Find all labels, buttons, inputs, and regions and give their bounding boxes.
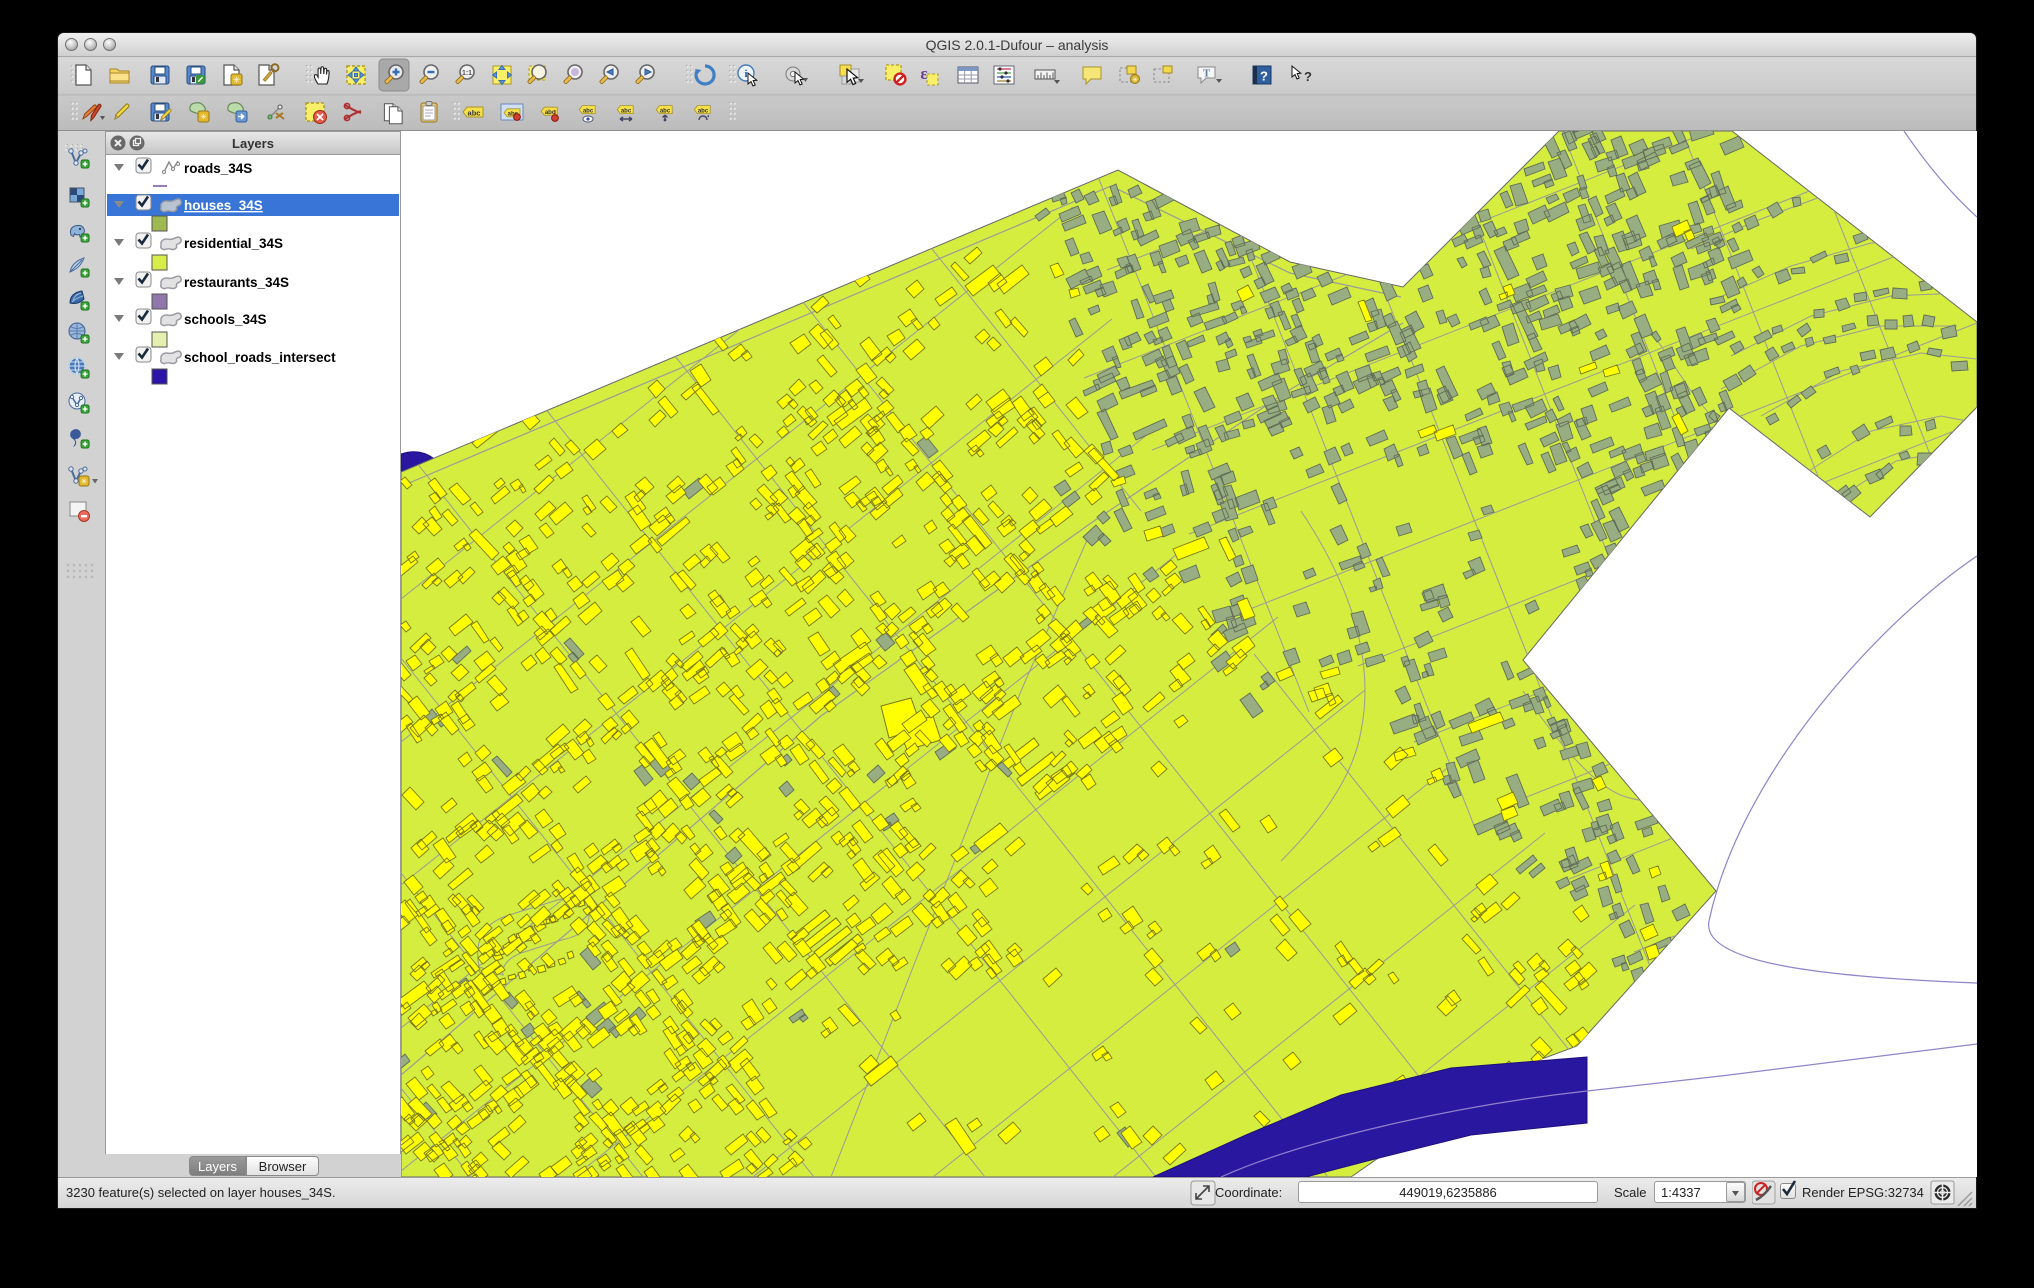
svg-text:ε: ε <box>920 64 927 83</box>
svg-text:T: T <box>1203 68 1211 80</box>
svg-text:✳: ✳ <box>200 113 207 122</box>
svg-text:?: ? <box>1304 69 1312 84</box>
svg-text:restaurants_34S: restaurants_34S <box>184 275 289 290</box>
svg-text:1:1: 1:1 <box>462 70 472 77</box>
svg-text:roads_34S: roads_34S <box>184 161 252 176</box>
svg-text:residential_34S: residential_34S <box>184 236 283 251</box>
svg-text:✳: ✳ <box>1132 76 1138 84</box>
svg-text:schools_34S: schools_34S <box>184 312 267 327</box>
svg-text:houses_34S: houses_34S <box>184 198 263 213</box>
svg-text:?: ? <box>1260 69 1268 84</box>
svg-text:✳: ✳ <box>233 75 241 85</box>
svg-text:✳: ✳ <box>81 477 88 486</box>
svg-text:i: i <box>744 68 747 80</box>
svg-text:school_roads_intersect: school_roads_intersect <box>184 350 336 365</box>
